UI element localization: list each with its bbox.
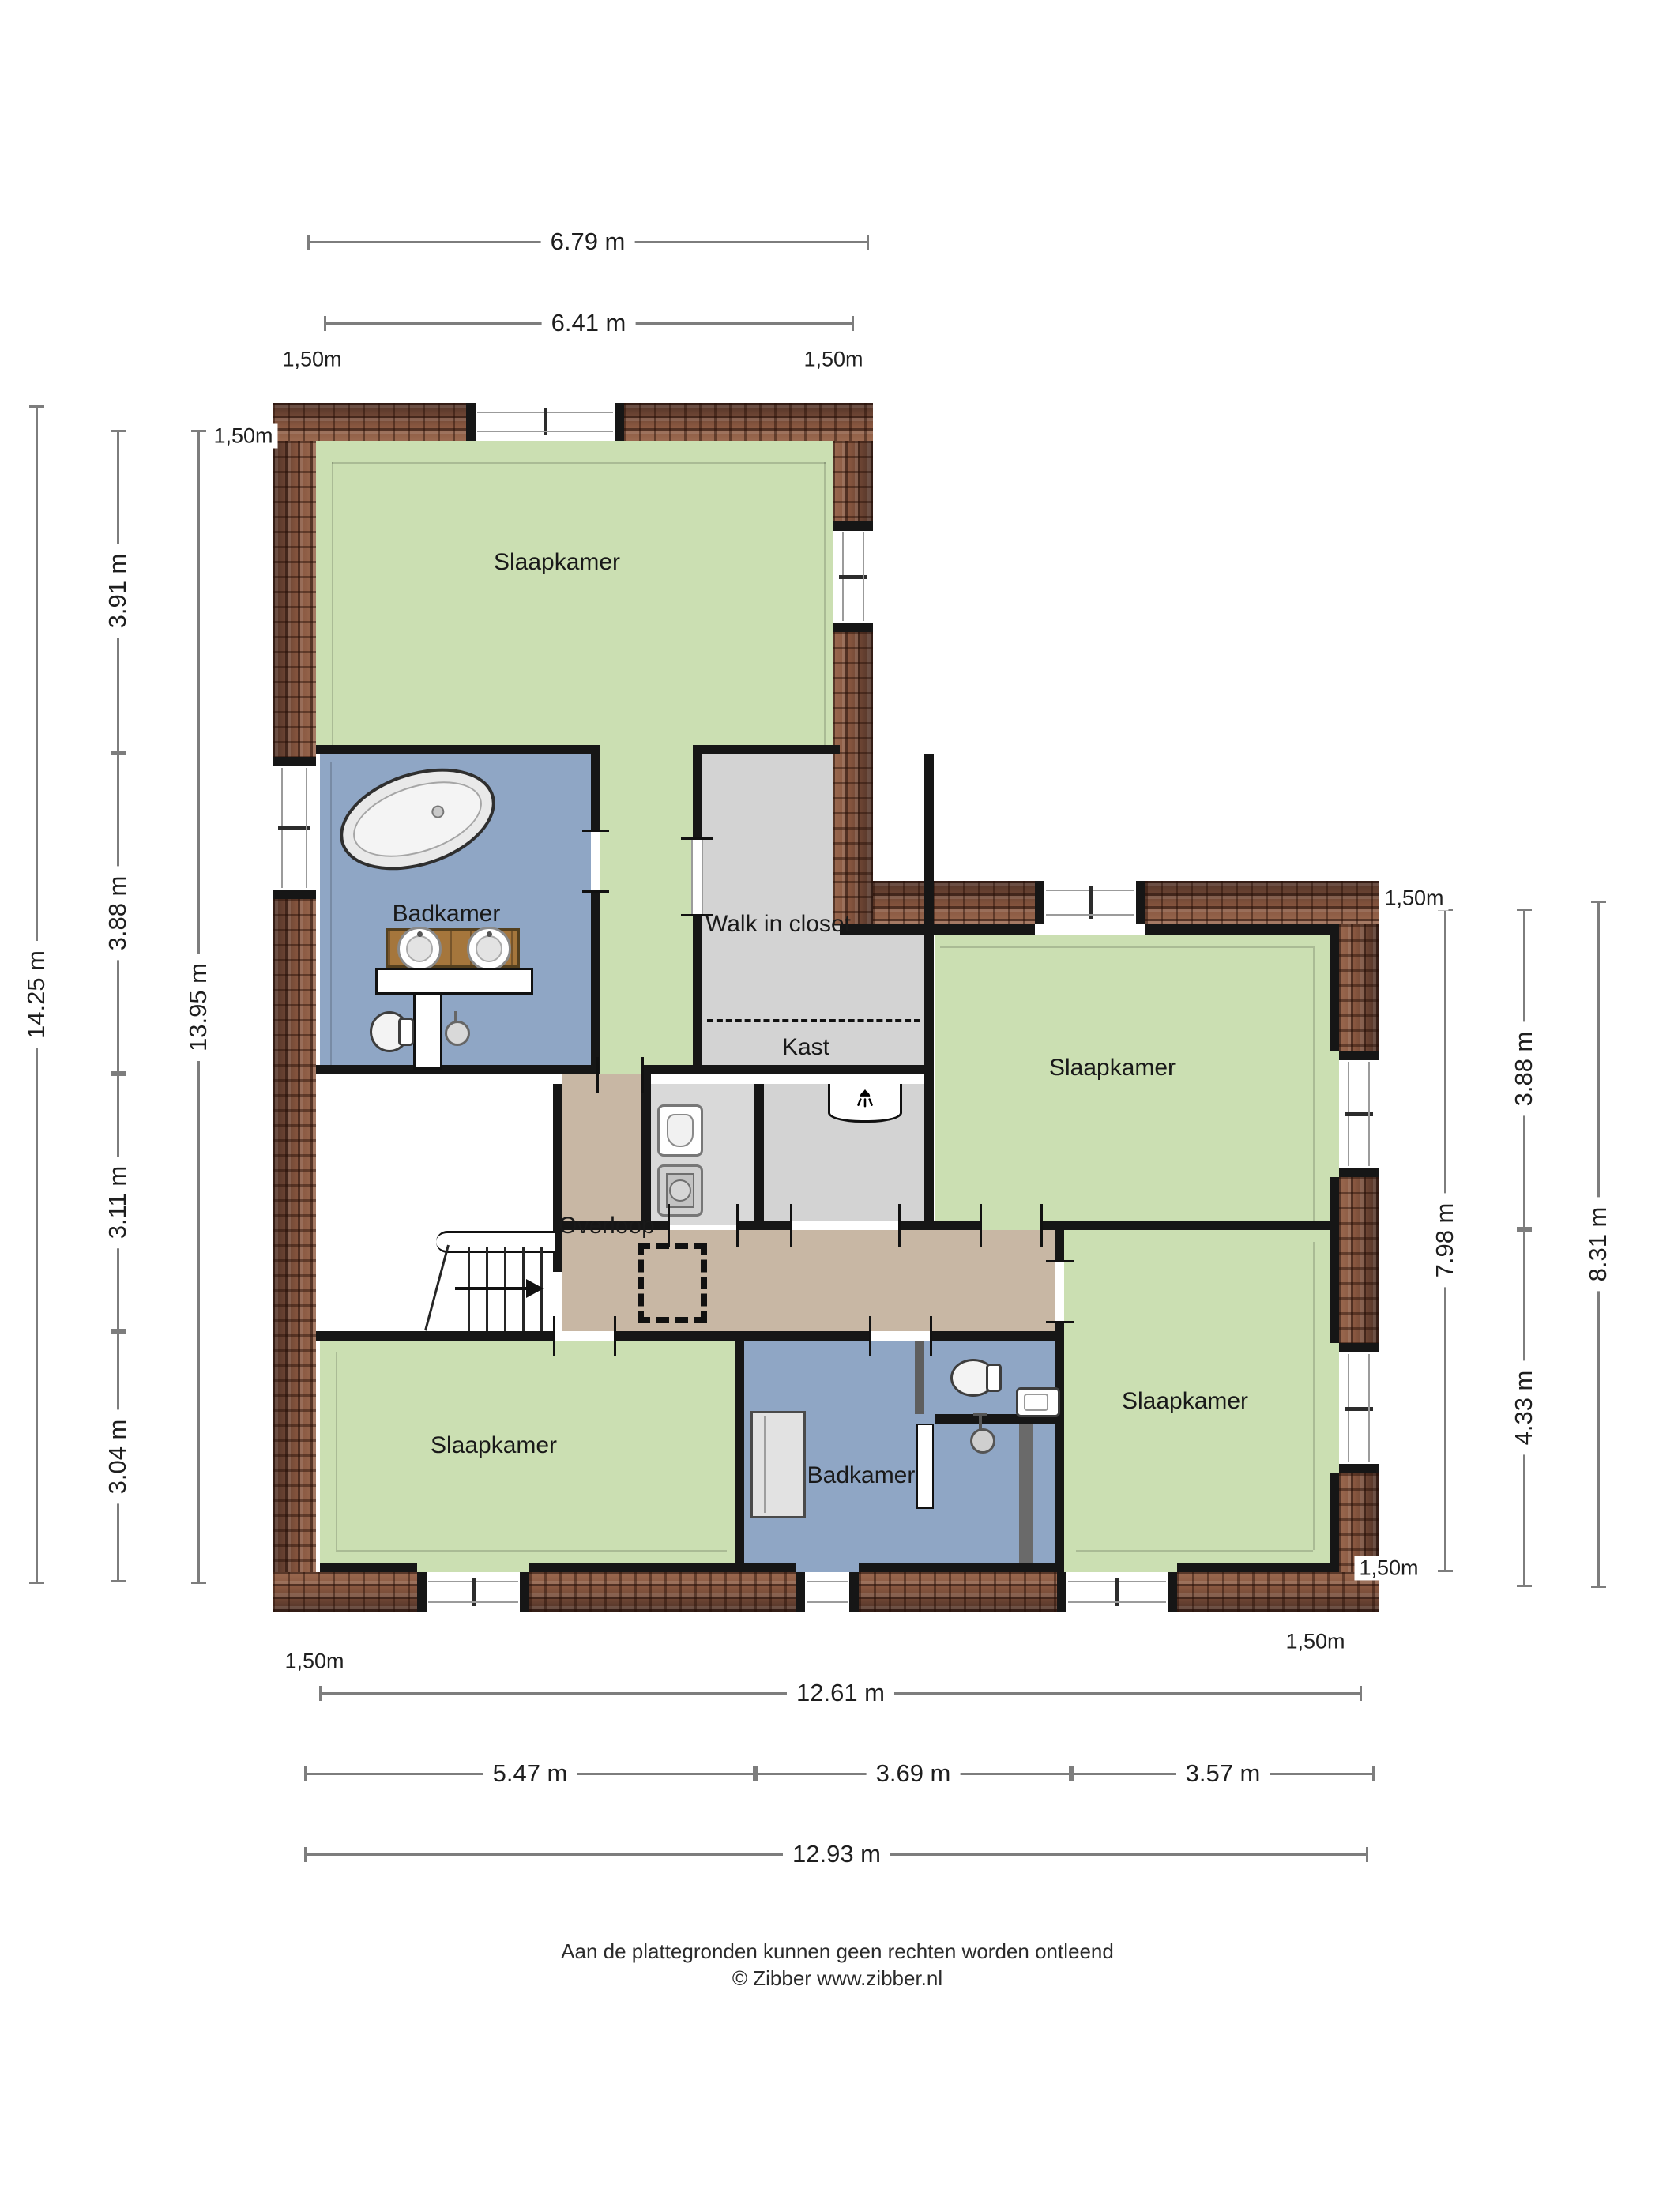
roof-edge-bottom-2 <box>529 1572 796 1612</box>
wall <box>840 924 1035 935</box>
dimension-label: 6.79 m <box>541 228 635 256</box>
wall <box>1145 924 1339 935</box>
dimension-label: 3.57 m <box>1176 1759 1270 1788</box>
window-mullion <box>1345 1407 1373 1411</box>
room-stairwell <box>320 1084 553 1331</box>
dimension-label: 5.47 m <box>483 1759 577 1788</box>
wall <box>529 1563 796 1572</box>
door-tick <box>1040 1204 1043 1247</box>
door-tick <box>898 1204 901 1247</box>
window-mullion <box>544 408 547 435</box>
dimension-label: 13.95 m <box>184 954 213 1061</box>
wall <box>859 1563 1057 1572</box>
offset-label-150: 1,50m <box>209 424 277 449</box>
wall <box>693 754 702 837</box>
window-cap <box>1035 881 1044 924</box>
wall <box>1043 1221 1339 1230</box>
washing-machine-icon <box>657 1164 703 1217</box>
window <box>476 403 615 441</box>
roof-edge-wing-right-1 <box>1339 924 1379 1051</box>
roof-edge-wing-top-right <box>1145 881 1379 924</box>
shower-icon <box>852 1087 878 1114</box>
window-cap <box>1339 1343 1379 1352</box>
wall <box>924 754 934 1221</box>
wall <box>1330 935 1339 1051</box>
window-mullion <box>1089 886 1093 919</box>
window <box>805 1572 849 1612</box>
room-walk-in-closet-upper <box>702 754 840 924</box>
door-tick <box>980 1204 982 1247</box>
roof-edge-wing-top-left <box>873 881 1035 924</box>
dimension-label: 8.31 m <box>1584 1198 1612 1292</box>
window <box>1066 1572 1168 1612</box>
wall <box>1055 1323 1064 1572</box>
room-label-slaapkamer-bottom-right: Slaapkamer <box>1122 1388 1248 1415</box>
roof-edge-midright-upper <box>833 441 873 521</box>
floorplan-canvas: Slaapkamer Badkamer Walk in closet Kast … <box>0 0 1659 2212</box>
footer-disclaimer: Aan de plattegronden kunnen geen rechten… <box>561 1939 1114 1964</box>
room-label-walk-in-closet: Walk in closet <box>705 911 851 938</box>
shower-panel <box>828 1084 902 1123</box>
wall <box>901 1221 980 1230</box>
door-tick <box>681 837 713 840</box>
stair-arrow-head <box>526 1279 544 1298</box>
roof-edge-top-left <box>273 403 466 441</box>
door-tick <box>1046 1260 1074 1262</box>
window-cap <box>1136 881 1145 924</box>
toilet-tank <box>398 1018 414 1046</box>
window-cap <box>273 890 316 899</box>
window-cap <box>833 521 873 531</box>
roof-edge-midright-lower <box>833 632 873 881</box>
window-cap <box>520 1572 529 1612</box>
window <box>1044 881 1136 924</box>
wall <box>735 1341 744 1572</box>
window-cap <box>796 1572 805 1612</box>
window-cap <box>1057 1572 1066 1612</box>
wall <box>320 1563 417 1572</box>
roof-edge-top-right <box>624 403 873 441</box>
vanity-counter <box>375 968 533 995</box>
height-contour-line <box>336 1550 727 1552</box>
window-mullion <box>278 826 310 830</box>
wall <box>1330 1177 1339 1343</box>
window-mullion <box>472 1578 476 1606</box>
roof-edge-left-upper <box>273 441 316 757</box>
dimension-label: 12.93 m <box>783 1840 890 1868</box>
dimension-label: 3.11 m <box>103 1157 132 1248</box>
dimension-label: 3.88 m <box>1510 1022 1538 1116</box>
roof-edge-bottom-1 <box>273 1572 417 1612</box>
door-tick <box>596 1057 599 1093</box>
wall <box>316 1065 600 1074</box>
dimension-label: 3.88 m <box>103 867 132 961</box>
door-opening <box>591 829 600 893</box>
window-cap <box>1339 1168 1379 1177</box>
roof-edge-bottom-4 <box>1177 1572 1379 1612</box>
height-contour-line <box>336 1352 337 1550</box>
door-tick <box>1046 1321 1074 1323</box>
height-contour-line <box>1313 946 1315 1221</box>
height-contour-line <box>824 462 826 745</box>
room-green-strip <box>600 745 693 1074</box>
window-cap <box>615 403 624 441</box>
wall <box>641 1074 651 1230</box>
window-cap <box>273 757 316 766</box>
offset-label-150: 1,50m <box>799 348 867 372</box>
window-cap <box>466 403 476 441</box>
roof-edge-left-lower <box>273 899 316 1612</box>
wall <box>591 754 600 829</box>
sink-icon <box>397 927 442 971</box>
wall <box>316 745 600 754</box>
offset-label-150: 1,50m <box>1281 1630 1349 1654</box>
room-label-kast: Kast <box>782 1034 829 1061</box>
room-label-badkamer-top: Badkamer <box>393 901 501 927</box>
window-cap <box>417 1572 427 1612</box>
wall <box>616 1331 869 1341</box>
wall <box>1177 1563 1339 1572</box>
window-cap <box>1168 1572 1177 1612</box>
shower-tray <box>750 1411 806 1518</box>
offset-label-150: 1,50m <box>277 348 346 372</box>
wall <box>591 893 600 1074</box>
door-tick <box>614 1316 616 1356</box>
room-label-slaapkamer-bottom-left: Slaapkamer <box>431 1432 557 1459</box>
door-tick <box>641 1057 644 1093</box>
toilet-door-leaf <box>916 1424 934 1509</box>
dimension-label: 4.33 m <box>1510 1361 1538 1455</box>
door-tick <box>582 890 609 893</box>
window <box>1339 1352 1379 1464</box>
window <box>273 766 316 890</box>
window-cap <box>833 623 873 632</box>
stair-direction-arrow <box>455 1287 528 1290</box>
dimension-label: 12.61 m <box>787 1679 894 1707</box>
room-slaapkamer-top <box>316 441 840 745</box>
door-tick <box>930 1316 932 1356</box>
offset-label-150: 1,50m <box>1379 886 1448 911</box>
door-tick <box>869 1316 871 1356</box>
room-label-overloop: Overloop <box>559 1213 655 1240</box>
height-contour-line <box>330 762 332 1065</box>
door-tick <box>582 829 609 832</box>
door-tick <box>736 1204 739 1247</box>
room-label-badkamer-bottom: Badkamer <box>807 1462 916 1489</box>
dimension-label: 3.91 m <box>103 544 132 638</box>
door-tick <box>668 1204 670 1247</box>
offset-label-150: 1,50m <box>280 1650 348 1674</box>
roof-edge-bottom-3 <box>859 1572 1057 1612</box>
window-mullion <box>839 575 867 579</box>
door-tick <box>553 1316 555 1356</box>
room-overloop-strip <box>562 1074 641 1230</box>
footer-copyright: © Zibber www.zibber.nl <box>732 1966 942 1991</box>
wall <box>316 1331 553 1341</box>
window <box>1339 1060 1379 1168</box>
height-contour-line <box>1313 1242 1315 1550</box>
toilet-tank <box>986 1364 1002 1392</box>
dimension-label: 3.04 m <box>103 1410 132 1504</box>
height-contour-line <box>1076 1550 1313 1552</box>
shower-partition-wall <box>1019 1424 1033 1570</box>
utility-sink-icon <box>657 1104 703 1157</box>
dimension-label: 6.41 m <box>542 309 636 337</box>
wall <box>739 1221 790 1230</box>
mixer-tap-stem <box>454 1011 457 1022</box>
dimension-label: 14.25 m <box>22 941 51 1048</box>
kast-divider-dashed-line <box>707 1019 920 1022</box>
room-slaapkamer-right <box>935 935 1339 1230</box>
height-contour-line <box>332 462 333 745</box>
door-tick <box>790 1204 792 1247</box>
stair-landing <box>436 1231 555 1253</box>
mixer-tap-icon <box>445 1021 470 1046</box>
roof-edge-wing-right-2 <box>1339 1177 1379 1343</box>
window-cap <box>849 1572 859 1612</box>
wall <box>932 1331 1064 1341</box>
wall <box>693 916 702 1074</box>
height-contour-line <box>332 462 826 464</box>
window <box>833 531 873 623</box>
height-contour-line <box>940 946 1313 948</box>
wall <box>754 1084 764 1224</box>
door-opening <box>693 837 702 916</box>
vide-dashed-opening <box>638 1243 707 1323</box>
window-cap <box>1339 1051 1379 1060</box>
hand-shower-icon <box>970 1428 995 1454</box>
window-mullion <box>1115 1578 1119 1606</box>
small-sink-icon <box>1016 1387 1060 1417</box>
window-mullion <box>1345 1112 1373 1116</box>
window <box>427 1572 520 1612</box>
hand-shower-bracket <box>973 1413 987 1416</box>
wall <box>641 1065 934 1074</box>
hand-shower-stem <box>979 1416 982 1430</box>
dimension-label: 7.98 m <box>1431 1194 1459 1288</box>
wall <box>1330 1473 1339 1563</box>
sink-icon <box>467 927 511 971</box>
wall <box>693 745 840 754</box>
room-label-slaapkamer-top: Slaapkamer <box>494 549 620 576</box>
wall <box>1055 1230 1064 1260</box>
vanity-pedestal <box>413 992 442 1070</box>
offset-label-150: 1,50m <box>1354 1556 1423 1581</box>
toilet-partition-wall <box>915 1341 924 1414</box>
window-cap <box>1339 1464 1379 1473</box>
dimension-label: 3.69 m <box>867 1759 961 1788</box>
room-label-slaapkamer-right: Slaapkamer <box>1049 1055 1176 1082</box>
